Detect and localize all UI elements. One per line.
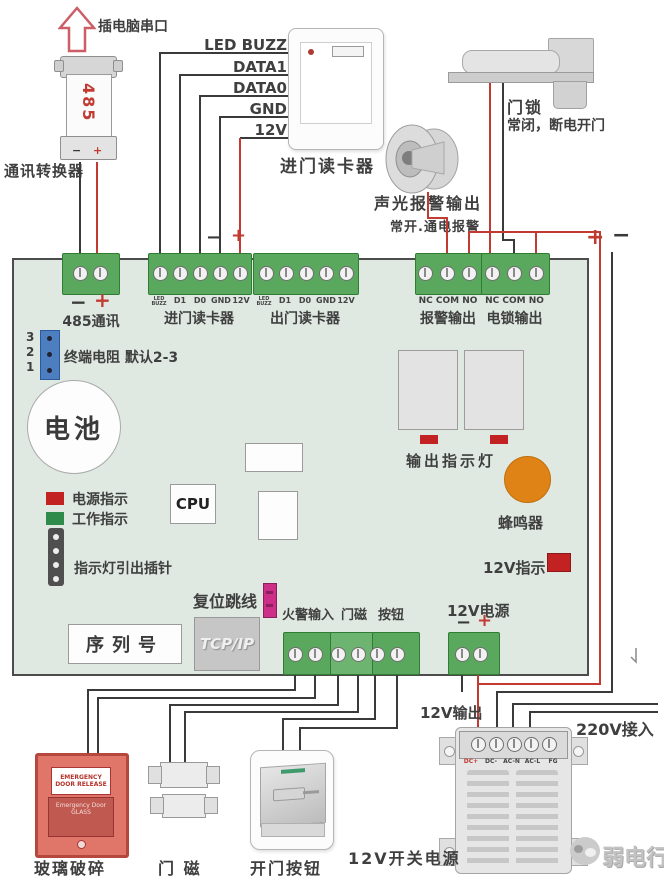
terminal-screw [455, 647, 470, 662]
cpu-chip: CPU [170, 484, 216, 524]
magnet-tab [148, 766, 162, 784]
terminal-screw [319, 266, 334, 281]
psu-label: 12V开关电源 [348, 845, 461, 869]
psu-screw [524, 737, 539, 752]
run-led-label: 工作指示 [72, 509, 128, 529]
terminal-screw [473, 647, 488, 662]
terminal-screw [418, 266, 433, 281]
button-label: 按钮 [378, 604, 404, 623]
terminal-screw [279, 266, 294, 281]
terminal-screw [331, 647, 346, 662]
lockout-pin-labels: NC COM NO [481, 296, 548, 306]
terminal-screw [259, 266, 274, 281]
buzzer-label: 蜂鸣器 [498, 512, 543, 533]
output-led-1 [420, 435, 438, 444]
psu-screw [542, 737, 557, 752]
terminal-screw [485, 266, 500, 281]
terminal-screw [288, 647, 303, 662]
terminator-jumper [40, 330, 60, 380]
battery-label: 电池 [44, 409, 104, 446]
terminal-screw [213, 266, 228, 281]
lock-cylinder [462, 50, 560, 74]
terminal-screw [93, 266, 108, 281]
psu-screw [489, 737, 504, 752]
siren-icon [382, 122, 467, 197]
converter-body: 485 [66, 74, 112, 140]
terminal-screw [308, 647, 323, 662]
serial-number-box: 序列号 [68, 624, 182, 664]
entry-card-reader [288, 28, 384, 150]
jumper-pin-3: 3 [26, 330, 34, 345]
buzzer [504, 456, 551, 503]
magnet-bar-bottom [162, 794, 206, 818]
12v-led-icon [547, 553, 571, 572]
reset-jumper-label: 复位跳线 [193, 588, 257, 612]
12v-led-label: 12V指示 [483, 557, 545, 578]
psu-pin-labels: DC+ DC- AC-N AC-L FG [461, 758, 565, 765]
reader-slot [332, 46, 364, 57]
serial-arrow-icon [58, 6, 98, 54]
lock-bolt [553, 81, 587, 109]
pin-header-label: 指示灯引出插针 [74, 558, 172, 578]
exit-button [250, 750, 334, 850]
relay-1 [398, 350, 458, 430]
reset-jumper [263, 583, 277, 618]
magnet-bar-top [160, 762, 208, 788]
indicator-pin-header [48, 528, 64, 586]
converter-left-nut [54, 60, 64, 72]
t485-name: 485通讯 [55, 311, 127, 331]
jumper-pin-2: 2 [26, 345, 34, 359]
terminal-485 [62, 253, 120, 295]
power-led-icon [46, 492, 64, 505]
run-led-icon [46, 512, 64, 525]
t485-plus: + [94, 288, 111, 312]
power-led-label: 电源指示 [72, 489, 128, 509]
serial-number-label: 序列号 [86, 631, 164, 657]
output-leds-label: 输出指示灯 [406, 450, 496, 471]
exit-terminal-name: 出门读卡器 [253, 308, 357, 328]
terminal-screw [73, 266, 88, 281]
terminal-screw [507, 266, 522, 281]
converter-bottom-connector [60, 136, 117, 160]
lockout-terminal-name: 电锁输出 [481, 308, 548, 328]
tcpip-module: TCP/IP [194, 617, 260, 671]
reader-led-icon [308, 49, 314, 55]
psu-vents [516, 770, 558, 866]
terminal-screw [529, 266, 544, 281]
relay-2 [464, 350, 524, 430]
glass-line1: EMERGENCY [60, 774, 102, 781]
terminator-label: 终端电阻 默认2-3 [64, 347, 178, 367]
terminal-screw [193, 266, 208, 281]
entry-terminal-name: 进门读卡器 [148, 308, 250, 328]
magnet-tab [206, 766, 220, 784]
glass-line2: DOOR RELEASE [55, 781, 107, 788]
converter-minus: − [72, 144, 81, 157]
converter-right-nut [113, 60, 123, 72]
fire-input-label: 火警输入 [282, 604, 334, 623]
converter-plus: + [93, 144, 102, 157]
battery: 电池 [27, 380, 121, 474]
psu-out-label: 12V输出 [420, 702, 482, 723]
glass-panel-text: Emergency Door GLASS [49, 802, 113, 816]
psu-screw [471, 737, 486, 752]
terminal-screw [462, 266, 477, 281]
magnet-tab [204, 797, 218, 814]
cpu-label: CPU [176, 495, 210, 513]
12v-minus: − [456, 612, 471, 633]
terminal-screw [440, 266, 455, 281]
terminal-screw [390, 647, 405, 662]
terminal-screw [153, 266, 168, 281]
exit-pin-labels: LED BUZZ D1 D0 GND 12V [253, 296, 357, 307]
jumper-pin-1: 1 [26, 360, 34, 374]
magnet-tab [150, 797, 164, 814]
door-sensor-label: 门磁 [341, 604, 367, 623]
psu-vents [467, 770, 509, 866]
alarm-pin-labels: NC COM NO [415, 296, 481, 306]
output-led-2 [490, 435, 508, 444]
watermark-text: 弱电行业网 [602, 840, 664, 872]
entry-pin-labels: LED BUZZ D1 D0 GND 12V [148, 296, 250, 307]
converter-485-text: 485 [79, 83, 98, 122]
component-box-horizontal [245, 443, 303, 472]
terminal-screw [299, 266, 314, 281]
terminal-screw [339, 266, 354, 281]
12v-plus: + [477, 610, 492, 631]
terminal-screw [233, 266, 248, 281]
tcpip-label: TCP/IP [200, 635, 254, 653]
watermark-logo [570, 837, 600, 865]
terminal-screw [173, 266, 188, 281]
alarm-terminal-name: 报警输出 [415, 308, 481, 328]
glass-break-button: EMERGENCY DOOR RELEASE Emergency Door GL… [35, 753, 129, 858]
exit-button-plate [260, 763, 326, 828]
terminal-screw [351, 647, 366, 662]
psu-ac-label: 220V接入 [576, 716, 654, 740]
terminal-screw [370, 647, 385, 662]
component-box-vertical [258, 491, 298, 540]
psu-screw [507, 737, 522, 752]
wiring-diagram: 插电脑串口 485 − + 通讯转换器 LED BUZZ DATA1 DATA0… [0, 0, 664, 878]
